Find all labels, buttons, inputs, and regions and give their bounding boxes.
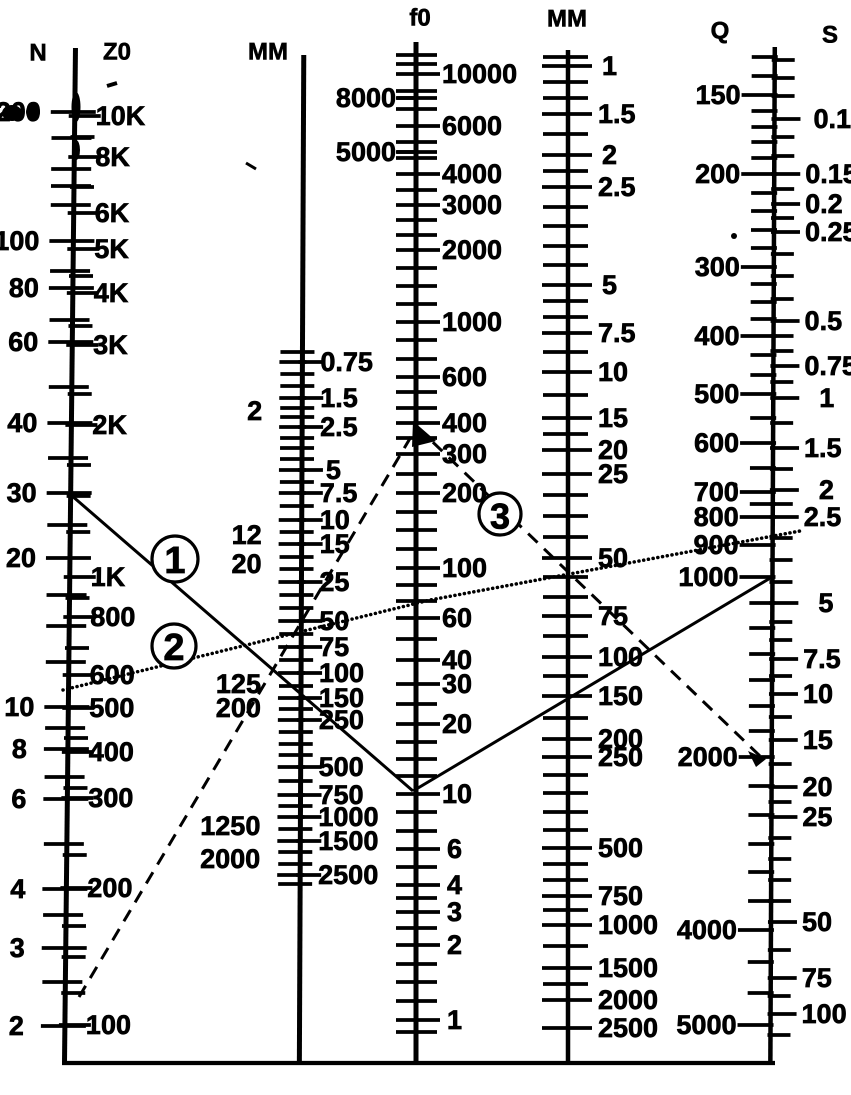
svg-text:3K: 3K (93, 330, 128, 360)
svg-text:10: 10 (442, 779, 472, 809)
svg-text:1: 1 (447, 1005, 462, 1035)
svg-text:15: 15 (803, 725, 833, 755)
svg-text:150: 150 (695, 80, 740, 110)
svg-text:250: 250 (598, 742, 643, 772)
svg-text:5K: 5K (94, 234, 129, 264)
svg-text:750: 750 (598, 881, 643, 911)
svg-text:1000: 1000 (678, 562, 738, 592)
svg-text:20: 20 (231, 549, 261, 579)
svg-text:5000: 5000 (676, 1010, 736, 1040)
svg-text:6000: 6000 (442, 111, 502, 141)
svg-text:2500: 2500 (318, 860, 378, 890)
svg-text:1.5: 1.5 (804, 433, 842, 463)
svg-text:MM: MM (547, 6, 587, 33)
svg-text:1250: 1250 (200, 811, 260, 841)
svg-text:4: 4 (10, 874, 25, 904)
svg-text:1000: 1000 (442, 307, 502, 337)
svg-text:600: 600 (694, 428, 739, 458)
svg-text:2: 2 (447, 930, 462, 960)
svg-text:4000: 4000 (442, 159, 502, 189)
svg-text:3000: 3000 (442, 190, 502, 220)
svg-text:20: 20 (803, 772, 833, 802)
svg-text:2: 2 (247, 396, 262, 426)
svg-text:400: 400 (694, 321, 739, 351)
svg-text:0.15: 0.15 (805, 159, 851, 189)
svg-text:0.2: 0.2 (805, 189, 843, 219)
svg-text:15: 15 (320, 529, 350, 559)
svg-text:2: 2 (163, 627, 184, 669)
svg-text:500: 500 (694, 379, 739, 409)
svg-text:3: 3 (10, 933, 25, 963)
svg-text:3: 3 (490, 496, 510, 537)
svg-text:25: 25 (598, 459, 628, 489)
svg-text:MM: MM (248, 39, 288, 66)
svg-text:80: 80 (9, 273, 39, 303)
svg-text:6K: 6K (95, 198, 130, 228)
svg-text:200: 200 (87, 873, 132, 903)
svg-text:N: N (29, 40, 46, 67)
svg-text:150: 150 (598, 681, 643, 711)
svg-text:1500: 1500 (598, 953, 658, 983)
svg-text:50: 50 (802, 907, 832, 937)
svg-text:100: 100 (0, 226, 40, 256)
svg-text:10: 10 (4, 692, 34, 722)
svg-text:7.5: 7.5 (598, 318, 636, 348)
svg-text:2000: 2000 (598, 985, 658, 1015)
svg-text:1K: 1K (91, 562, 126, 592)
svg-text:2.5: 2.5 (804, 502, 842, 532)
svg-text:0.1: 0.1 (813, 104, 851, 134)
svg-text:40: 40 (7, 408, 37, 438)
svg-text:300: 300 (88, 783, 133, 813)
svg-text:500: 500 (598, 833, 643, 863)
svg-text:25: 25 (319, 567, 349, 597)
svg-text:2.5: 2.5 (598, 172, 636, 202)
svg-text:30: 30 (6, 478, 36, 508)
svg-text:7.5: 7.5 (803, 644, 841, 674)
svg-text:2000: 2000 (200, 844, 260, 874)
svg-text:1500: 1500 (318, 826, 378, 856)
svg-text:1: 1 (819, 383, 834, 413)
svg-text:2000: 2000 (678, 742, 738, 772)
svg-text:100: 100 (802, 999, 847, 1029)
svg-text:0.5: 0.5 (805, 306, 843, 336)
svg-text:5: 5 (818, 588, 833, 618)
svg-text:Q: Q (711, 18, 730, 45)
svg-text:2: 2 (602, 140, 617, 170)
svg-text:8K: 8K (95, 142, 130, 172)
svg-text:0.75: 0.75 (320, 347, 373, 377)
svg-text:2: 2 (819, 475, 834, 505)
svg-text:1: 1 (602, 51, 617, 81)
svg-text:900: 900 (693, 530, 738, 560)
svg-text:100: 100 (442, 553, 487, 583)
svg-text:4K: 4K (94, 278, 129, 308)
svg-text:Z0: Z0 (103, 39, 131, 66)
svg-text:1.5: 1.5 (320, 383, 358, 413)
svg-text:1.5: 1.5 (598, 99, 636, 129)
svg-text:60: 60 (8, 327, 38, 357)
svg-text:60: 60 (442, 603, 472, 633)
svg-text:500: 500 (319, 752, 364, 782)
svg-text:2: 2 (9, 1011, 24, 1041)
svg-text:4: 4 (447, 870, 462, 900)
svg-text:200: 200 (216, 693, 261, 723)
svg-text:300: 300 (695, 252, 740, 282)
svg-text:2.5: 2.5 (320, 412, 358, 442)
svg-text:30: 30 (442, 669, 472, 699)
svg-text:400: 400 (442, 408, 487, 438)
svg-text:75: 75 (802, 963, 832, 993)
svg-text:20: 20 (6, 543, 36, 573)
svg-text:6: 6 (447, 834, 462, 864)
svg-text:25: 25 (802, 802, 832, 832)
svg-text:4000: 4000 (677, 915, 737, 945)
svg-text:100: 100 (86, 1010, 131, 1040)
svg-text:3: 3 (447, 897, 462, 927)
svg-text:f0: f0 (409, 5, 430, 32)
svg-text:800: 800 (90, 602, 135, 632)
svg-text:600: 600 (442, 362, 487, 392)
svg-text:5: 5 (602, 270, 617, 300)
svg-text:2000: 2000 (442, 235, 502, 265)
svg-text:15: 15 (598, 403, 628, 433)
svg-text:8000: 8000 (336, 83, 396, 113)
svg-text:8: 8 (12, 734, 27, 764)
svg-text:10000: 10000 (442, 59, 517, 89)
svg-text:10: 10 (598, 357, 628, 387)
svg-text:5000: 5000 (336, 137, 396, 167)
svg-text:400: 400 (89, 737, 134, 767)
svg-text:500: 500 (89, 693, 134, 723)
svg-text:300: 300 (442, 439, 487, 469)
svg-text:2K: 2K (92, 410, 127, 440)
svg-text:10: 10 (803, 679, 833, 709)
svg-text:20: 20 (442, 709, 472, 739)
svg-text:0.75: 0.75 (804, 351, 851, 381)
svg-text:6: 6 (11, 784, 26, 814)
svg-text:1000: 1000 (598, 910, 658, 940)
svg-text:10K: 10K (96, 101, 146, 131)
svg-text:S: S (822, 22, 838, 49)
svg-text:0.25: 0.25 (805, 217, 851, 247)
svg-text:12: 12 (232, 520, 262, 550)
svg-text:2500: 2500 (598, 1013, 658, 1043)
svg-text:7.5: 7.5 (320, 478, 358, 508)
svg-text:800: 800 (694, 502, 739, 532)
svg-text:1: 1 (164, 540, 185, 582)
svg-text:200: 200 (695, 159, 740, 189)
